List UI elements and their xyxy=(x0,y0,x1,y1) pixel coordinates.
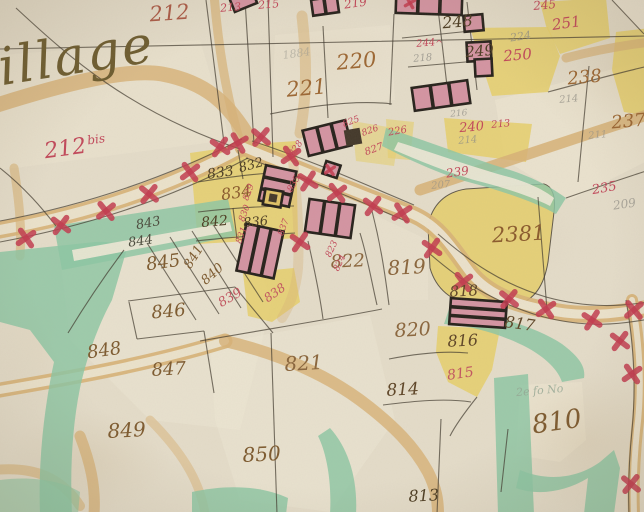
vignette-overlay xyxy=(0,0,644,512)
map-svg: Village212212bis220221188421321521924824… xyxy=(0,0,644,512)
cadastral-map: Village212212bis220221188421321521924824… xyxy=(0,0,644,512)
